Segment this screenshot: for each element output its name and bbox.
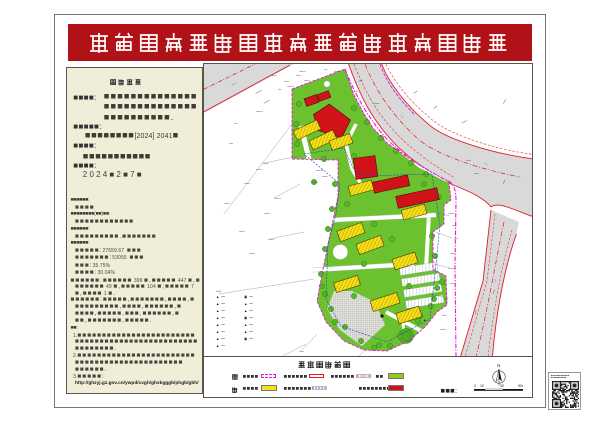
svg-text:▲: ▲ bbox=[216, 323, 219, 327]
svg-text:▪▪▪▪▪: ▪▪▪▪▪ bbox=[454, 237, 458, 240]
svg-text:▪▪▪▪▪▪▪▪: ▪▪▪▪▪▪▪▪ bbox=[299, 70, 306, 73]
svg-text:▣: ▣ bbox=[244, 316, 247, 320]
svg-text:30: 30 bbox=[500, 384, 504, 388]
svg-text:▲: ▲ bbox=[216, 302, 219, 306]
svg-text:▪▪▪▪: ▪▪▪▪ bbox=[249, 324, 253, 327]
svg-text:▪▪▪▪▪▪▪▪: ▪▪▪▪▪▪▪▪ bbox=[263, 99, 271, 105]
svg-text:10: 10 bbox=[480, 384, 484, 388]
svg-text:▲: ▲ bbox=[216, 344, 219, 348]
svg-text:▪▪▪▪▪▪: ▪▪▪▪▪▪ bbox=[442, 314, 447, 317]
svg-text:▪▪▪▪▪▪▪: ▪▪▪▪▪▪▪ bbox=[440, 328, 446, 331]
svg-text:▪▪▪▪▪: ▪▪▪▪▪ bbox=[444, 298, 448, 301]
svg-text:▲: ▲ bbox=[216, 337, 219, 341]
svg-text:▪▪▪▪: ▪▪▪▪ bbox=[234, 122, 238, 125]
svg-text:90▪: 90▪ bbox=[518, 384, 523, 388]
svg-text:▪▪▪▪: ▪▪▪▪ bbox=[249, 338, 253, 341]
svg-text:▪▪▪▪▪: ▪▪▪▪▪ bbox=[354, 90, 358, 93]
svg-text:▪▪▪▪▪▪: ▪▪▪▪▪▪ bbox=[450, 252, 455, 255]
svg-text:▪▪▪▪: ▪▪▪▪ bbox=[249, 331, 253, 334]
svg-text:▪▪▪▪: ▪▪▪▪ bbox=[278, 88, 282, 91]
svg-text:▪▪▪▪▪▪: ▪▪▪▪▪▪ bbox=[474, 172, 479, 175]
svg-text:▪▪▪▪▪▪▪: ▪▪▪▪▪▪▪ bbox=[239, 230, 245, 233]
svg-text:▲: ▲ bbox=[216, 295, 219, 299]
svg-text:▲: ▲ bbox=[244, 302, 247, 306]
svg-text:▪▪▪▪: ▪▪▪▪ bbox=[221, 310, 225, 313]
svg-text:▪▪▪▪▪▪▪: ▪▪▪▪▪▪▪ bbox=[374, 102, 380, 105]
svg-text:▣: ▣ bbox=[244, 337, 247, 341]
svg-text:▪▪▪▪: ▪▪▪▪ bbox=[221, 331, 225, 334]
svg-text:▲: ▲ bbox=[216, 330, 219, 334]
svg-text:▪▪▪▪: ▪▪▪▪ bbox=[249, 296, 253, 299]
svg-text:▪▪▪▪▪▪: ▪▪▪▪▪▪ bbox=[502, 98, 507, 104]
svg-text:▲: ▲ bbox=[423, 318, 426, 322]
svg-text:▪▪▪▪▪▪▪▪: ▪▪▪▪▪▪▪▪ bbox=[255, 89, 263, 95]
svg-text:▪▪▪▪▪: ▪▪▪▪▪ bbox=[229, 142, 233, 145]
svg-text:▪▪▪▪: ▪▪▪▪ bbox=[249, 310, 253, 313]
svg-text:▪▪▪▪: ▪▪▪▪ bbox=[221, 303, 225, 306]
svg-text:▪▪▪▪▪▪: ▪▪▪▪▪▪ bbox=[296, 74, 301, 77]
svg-text:▪▪▪▪▪▪▪▪: ▪▪▪▪▪▪▪▪ bbox=[270, 74, 277, 77]
svg-text:▲: ▲ bbox=[244, 323, 247, 327]
svg-text:▪▪▪▪: ▪▪▪▪ bbox=[221, 338, 225, 341]
svg-text:▪▪▪▪▪▪▪: ▪▪▪▪▪▪▪ bbox=[334, 70, 340, 73]
svg-text:▪▪▪▪▪: ▪▪▪▪▪ bbox=[432, 105, 437, 110]
svg-text:▪▪▪▪▪▪▪: ▪▪▪▪▪▪▪ bbox=[448, 212, 454, 215]
svg-text:0: 0 bbox=[474, 384, 476, 388]
svg-text:▪▪▪▪▪▪▪: ▪▪▪▪▪▪▪ bbox=[264, 212, 270, 215]
svg-text:N: N bbox=[497, 363, 500, 368]
svg-text:▲: ▲ bbox=[244, 330, 247, 334]
svg-text:▪▪▪▪▪: ▪▪▪▪▪ bbox=[412, 90, 417, 95]
svg-text:▪▪▪▪▪▪: ▪▪▪▪▪▪ bbox=[284, 80, 289, 83]
svg-text:▪▪▪▪▪▪▪: ▪▪▪▪▪▪▪ bbox=[461, 119, 468, 125]
svg-text:▪▪▪▪: ▪▪▪▪ bbox=[221, 345, 225, 348]
svg-text:▲: ▲ bbox=[216, 309, 219, 313]
svg-text:▪▪▪▪: ▪▪▪▪ bbox=[249, 303, 253, 306]
svg-text:▪▪▪▪▪▪▪: ▪▪▪▪▪▪▪ bbox=[312, 181, 318, 184]
svg-text:▪▪▪▪: ▪▪▪▪ bbox=[221, 317, 225, 320]
svg-text:▪▪▪▪▪▪: ▪▪▪▪▪▪ bbox=[216, 290, 222, 293]
svg-text:▪▪▪▪: ▪▪▪▪ bbox=[221, 324, 225, 327]
svg-text:▪▪▪▪▪▪▪: ▪▪▪▪▪▪▪ bbox=[304, 79, 310, 82]
svg-text:▲: ▲ bbox=[244, 309, 247, 313]
svg-text:▣: ▣ bbox=[244, 295, 247, 299]
svg-text:▪▪▪▪▪▪▪▪: ▪▪▪▪▪▪▪▪ bbox=[448, 267, 455, 270]
svg-text:▪▪▪▪▪▪▪▪: ▪▪▪▪▪▪▪▪ bbox=[287, 85, 294, 88]
svg-text:▲: ▲ bbox=[216, 316, 219, 320]
svg-text:▪▪▪▪: ▪▪▪▪ bbox=[249, 317, 253, 320]
svg-text:▪▪▪▪▪▪▪: ▪▪▪▪▪▪▪ bbox=[249, 252, 255, 255]
svg-text:▪▪▪▪▪▪▪▪: ▪▪▪▪▪▪▪▪ bbox=[316, 169, 323, 172]
svg-text:▪▪▪▪▪▪: ▪▪▪▪▪▪ bbox=[466, 159, 471, 162]
svg-text:▪▪▪▪▪▪▪: ▪▪▪▪▪▪▪ bbox=[224, 202, 230, 205]
svg-text:▪▪▪▪▪▪▪: ▪▪▪▪▪▪▪ bbox=[450, 282, 456, 285]
svg-text:▪▪▪▪▪▪▪▪: ▪▪▪▪▪▪▪▪ bbox=[256, 110, 263, 113]
svg-text:▪▪▪▪▪▪▪: ▪▪▪▪▪▪▪ bbox=[322, 175, 328, 178]
svg-text:▪▪▪▪: ▪▪▪▪ bbox=[324, 68, 328, 71]
svg-text:▪▪▪▪: ▪▪▪▪ bbox=[221, 296, 225, 299]
svg-text:▪▪▪▪▪▪: ▪▪▪▪▪▪ bbox=[452, 224, 457, 227]
